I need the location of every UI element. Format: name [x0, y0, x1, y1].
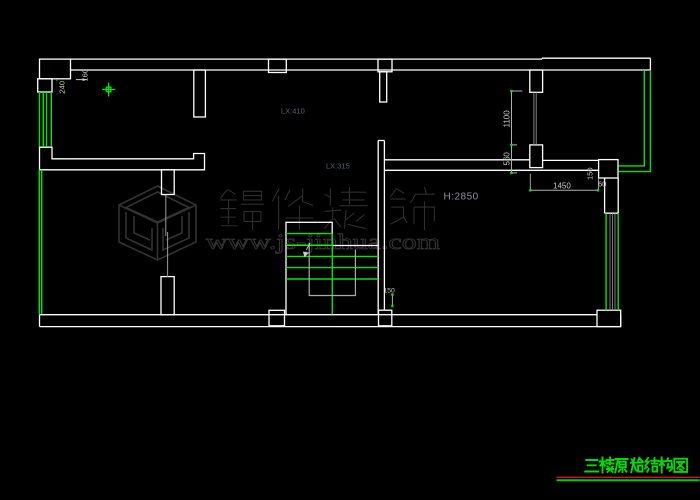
svg-text:LX:315: LX:315 — [326, 161, 350, 170]
svg-text:60: 60 — [598, 180, 606, 189]
svg-text:1100: 1100 — [503, 110, 512, 128]
svg-text:LX:410: LX:410 — [281, 107, 305, 116]
svg-text:1450: 1450 — [553, 182, 571, 191]
svg-text:www.js-jinhua.com: www.js-jinhua.com — [206, 229, 440, 254]
svg-text:240: 240 — [58, 81, 67, 94]
svg-text:150: 150 — [586, 167, 595, 180]
svg-text:H:2850: H:2850 — [444, 192, 479, 203]
svg-text:560: 560 — [503, 152, 512, 166]
